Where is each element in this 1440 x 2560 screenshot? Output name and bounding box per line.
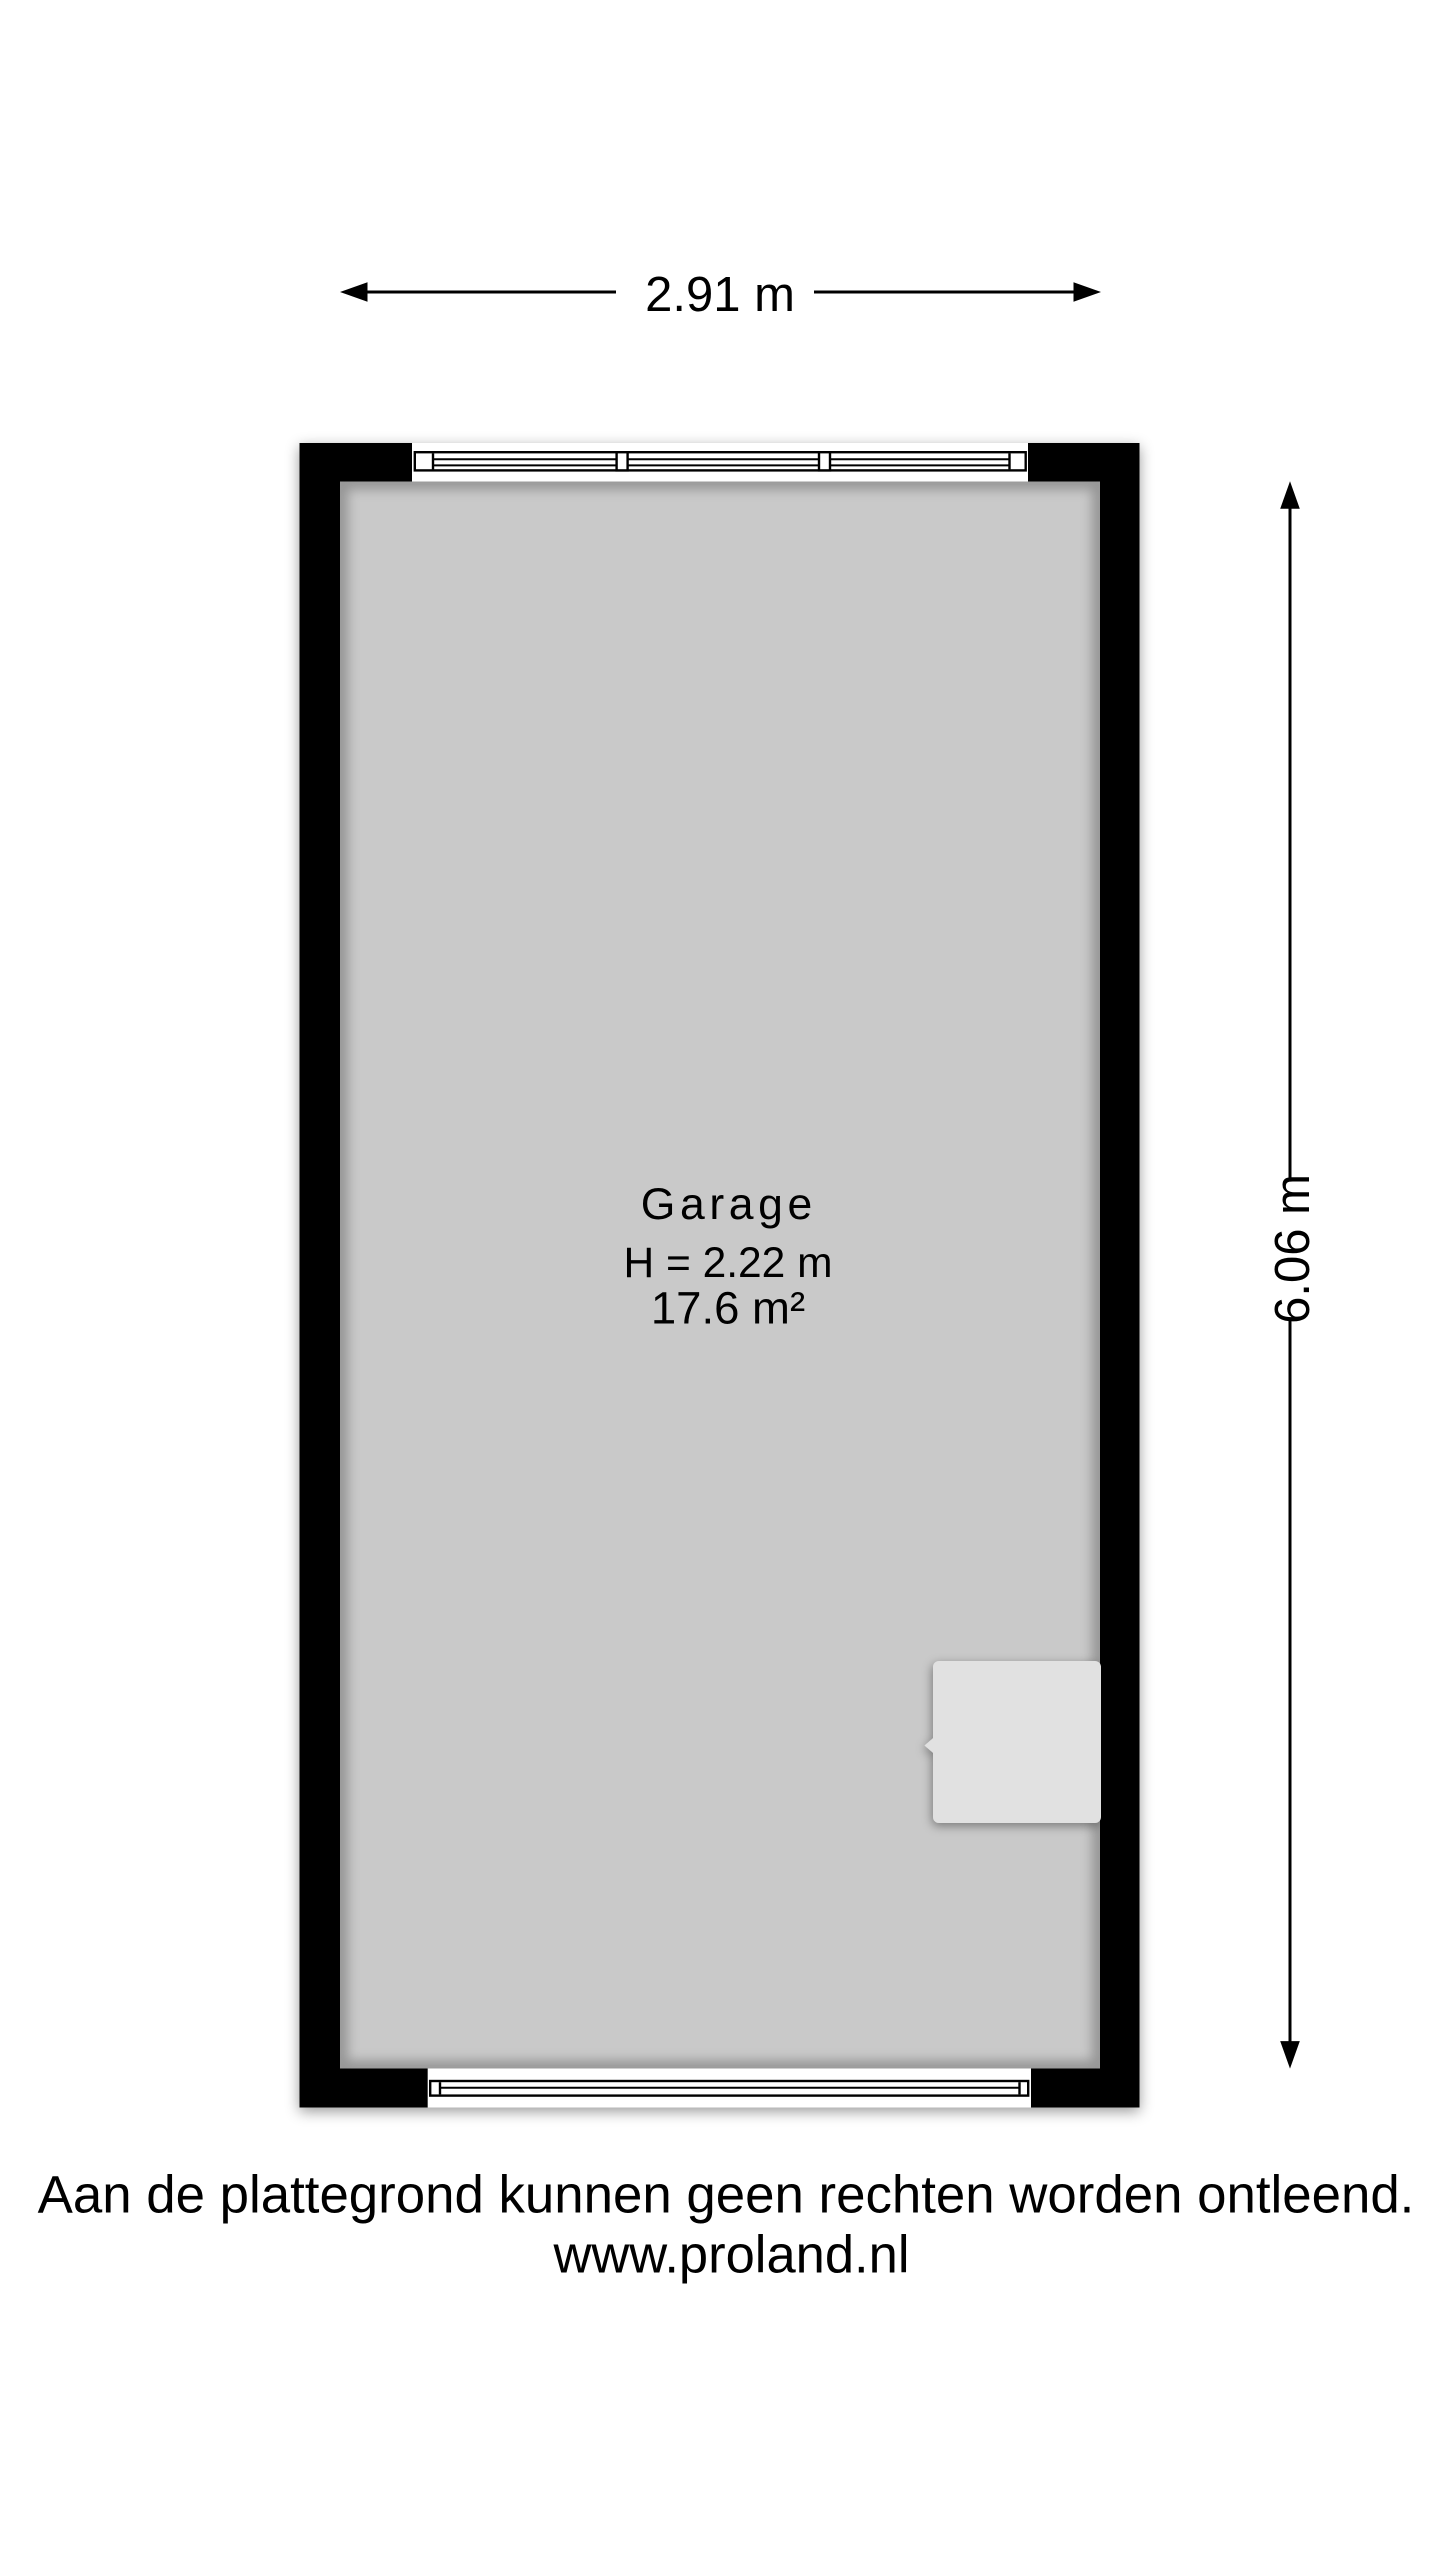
svg-text:17.6 m²: 17.6 m² bbox=[651, 1283, 805, 1334]
svg-text:Garage: Garage bbox=[641, 1180, 817, 1229]
svg-text:www.proland.nl: www.proland.nl bbox=[552, 2226, 909, 2285]
svg-text:H = 2.22 m: H = 2.22 m bbox=[623, 1240, 832, 1287]
svg-text:Aan de plattegrond kunnen geen: Aan de plattegrond kunnen geen rechten w… bbox=[38, 2166, 1415, 2225]
svg-text:6.06 m: 6.06 m bbox=[1266, 1174, 1320, 1324]
svg-text:2.91 m: 2.91 m bbox=[645, 268, 795, 322]
